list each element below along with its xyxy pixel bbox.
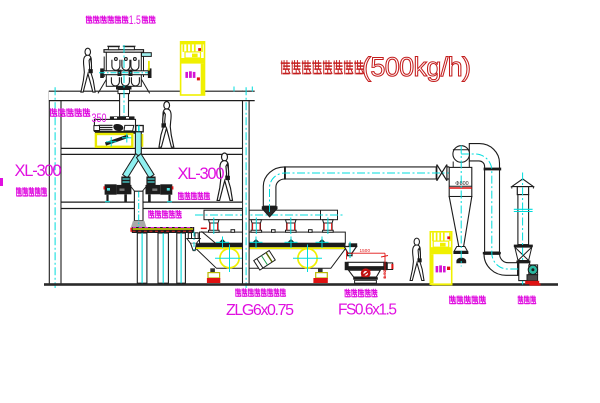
svg-text:1.5: 1.5 [129, 15, 141, 27]
svg-text:1500: 1500 [360, 248, 371, 253]
svg-text:(500kg/h): (500kg/h) [362, 52, 471, 82]
svg-text:350: 350 [92, 113, 107, 125]
svg-text:FS0.6x1.5: FS0.6x1.5 [338, 302, 397, 319]
svg-text:ZLG6x0.75: ZLG6x0.75 [226, 302, 294, 319]
svg-text:XL-300: XL-300 [15, 162, 62, 180]
svg-text:XL-300: XL-300 [178, 165, 225, 183]
svg-text:Φ800: Φ800 [455, 181, 468, 187]
svg-text:540: 540 [382, 270, 387, 279]
